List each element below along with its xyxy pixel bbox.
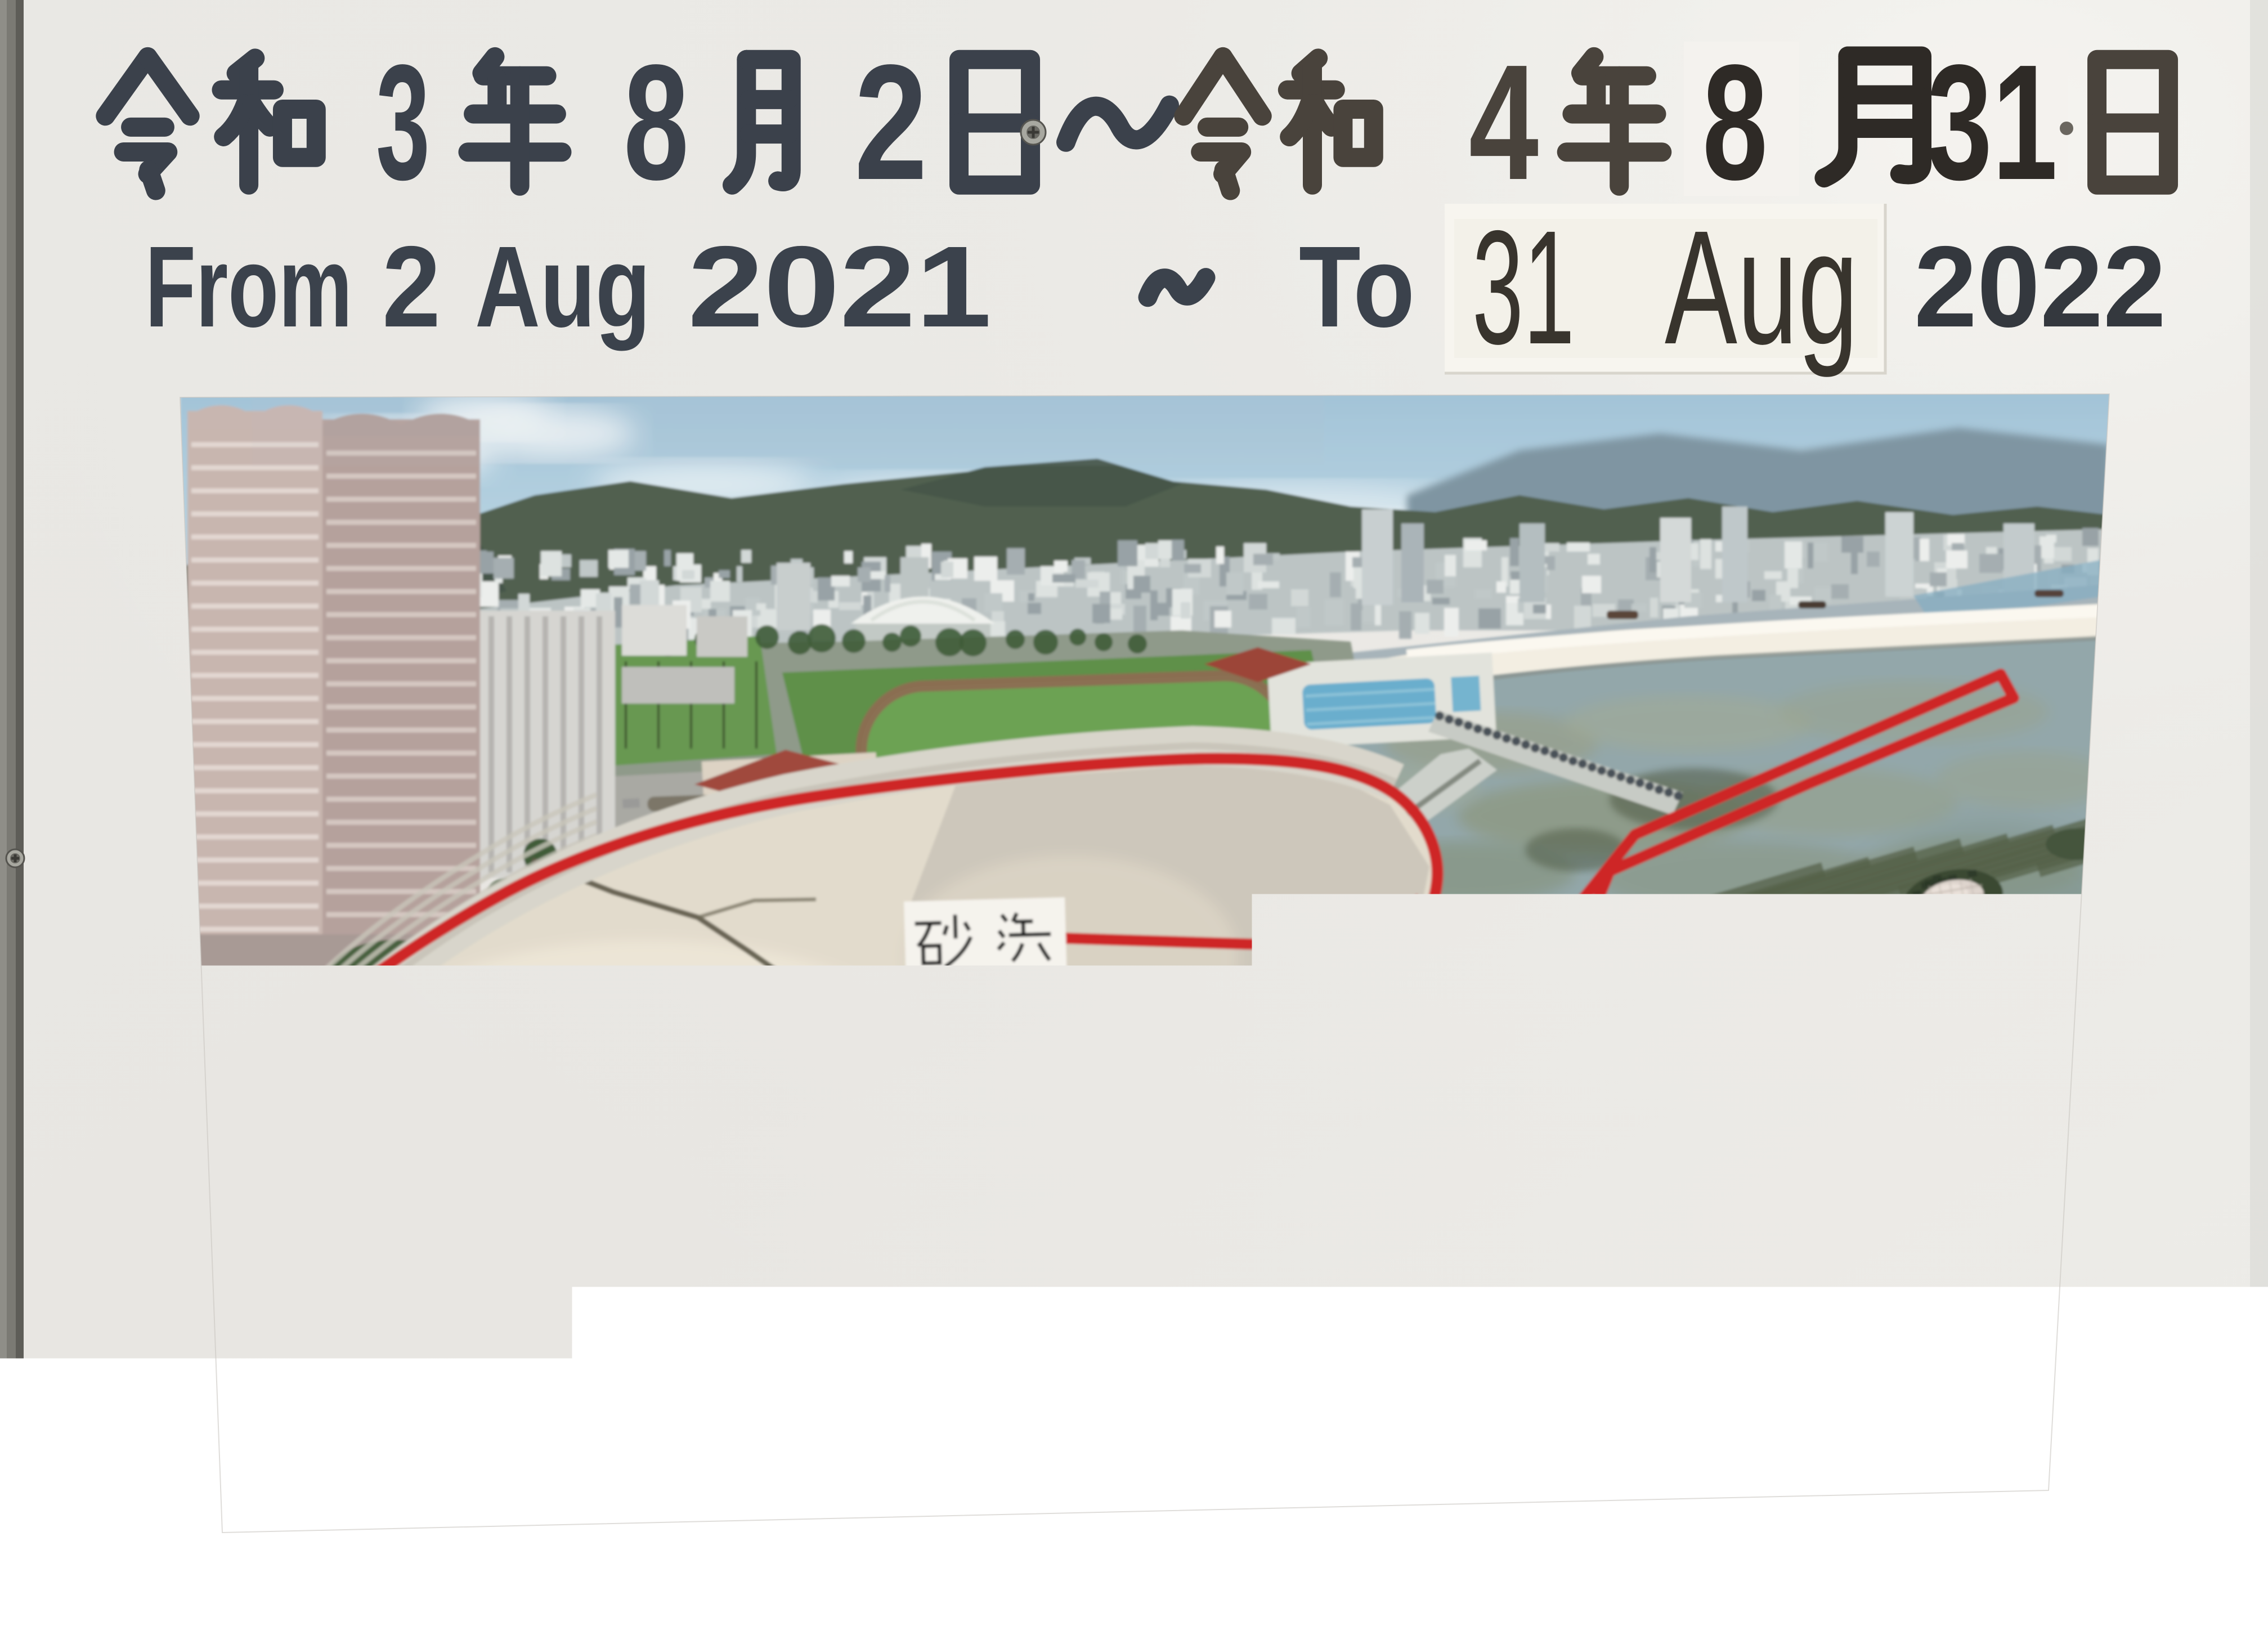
svg-text:2: 2 <box>382 222 441 351</box>
svg-text:31: 31 <box>1927 30 2058 214</box>
svg-text:31: 31 <box>1472 197 1575 378</box>
svg-text:2022: 2022 <box>1914 222 2166 351</box>
svg-text:Aug: Aug <box>1665 197 1858 379</box>
svg-text:2021: 2021 <box>688 222 992 351</box>
svg-text:8: 8 <box>624 30 689 214</box>
svg-text:2: 2 <box>854 30 927 214</box>
svg-text:To: To <box>1299 222 1415 351</box>
svg-text:8: 8 <box>1702 30 1768 214</box>
svg-text:Aug: Aug <box>475 222 651 351</box>
svg-text:From: From <box>145 222 352 351</box>
svg-text:4: 4 <box>1469 30 1539 214</box>
svg-text:3: 3 <box>376 30 430 214</box>
